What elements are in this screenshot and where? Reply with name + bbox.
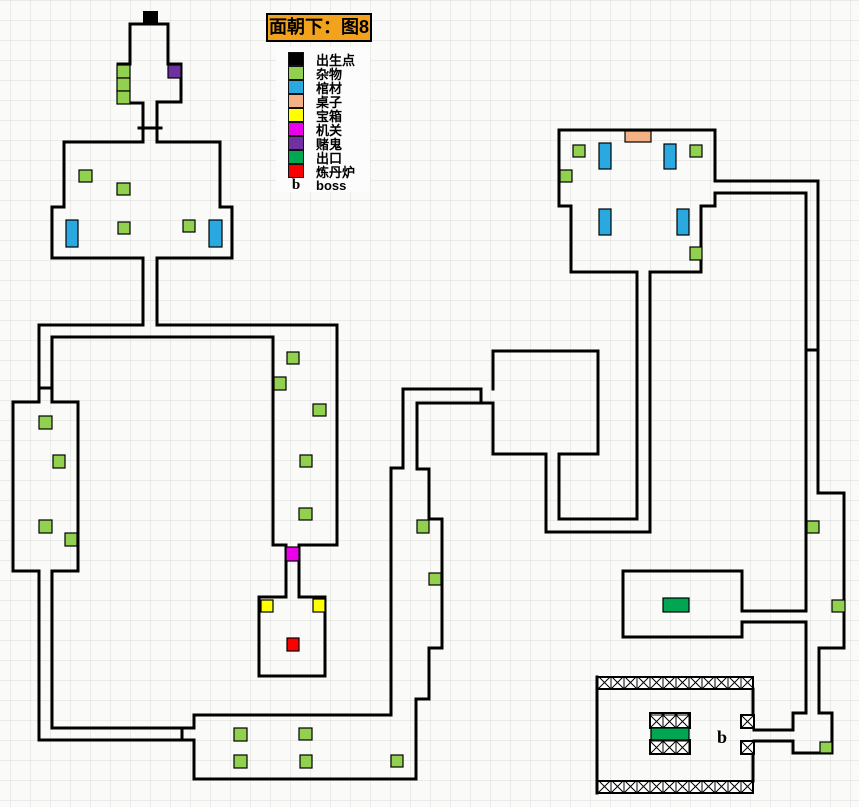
exit-marker	[651, 728, 689, 740]
sundries-marker	[274, 377, 286, 390]
sundries-marker	[117, 65, 130, 78]
sundries-marker	[234, 755, 247, 768]
sundries-marker	[65, 533, 77, 546]
hatched-wall	[597, 677, 753, 689]
legend-swatch	[288, 122, 304, 136]
hatched-wall	[741, 715, 754, 728]
sundries-marker	[832, 600, 845, 612]
legend-swatch	[288, 52, 304, 66]
coffin-marker	[66, 220, 78, 247]
sundries-marker	[39, 416, 52, 429]
sundries-marker	[807, 521, 819, 533]
hatched-wall	[741, 741, 754, 754]
alchemy-furnace-marker	[287, 638, 299, 651]
coffin-marker	[677, 209, 689, 235]
coffin-marker	[599, 143, 611, 169]
sundries-marker	[820, 742, 832, 753]
coffin-marker	[599, 209, 611, 235]
sundries-marker	[234, 728, 247, 741]
legend-swatch	[288, 108, 304, 122]
legend-swatch	[288, 136, 304, 150]
sundries-marker	[118, 222, 130, 234]
mechanism-marker	[286, 547, 299, 561]
sundries-marker	[573, 145, 585, 157]
legend-swatch	[288, 150, 304, 164]
legend: 出生点杂物棺材桌子宝箱机关赌鬼出口炼丹炉bboss	[288, 52, 355, 192]
table-marker	[625, 131, 651, 142]
sundries-marker	[429, 573, 441, 585]
treasure-chest-marker	[261, 600, 273, 612]
sundries-marker	[183, 220, 195, 232]
legend-item: bboss	[288, 178, 355, 192]
treasure-chest-marker	[313, 599, 325, 612]
sundries-marker	[117, 91, 130, 104]
sundries-marker	[117, 183, 130, 195]
spawn-point-marker	[143, 11, 158, 24]
hatched-wall	[650, 713, 690, 728]
boss-label: b	[717, 727, 727, 747]
legend-label: boss	[316, 178, 346, 193]
legend-swatch	[288, 66, 304, 80]
map-canvas: b 面朝下：图8 出生点杂物棺材桌子宝箱机关赌鬼出口炼丹炉bboss	[0, 0, 859, 807]
hatched-wall	[597, 781, 753, 793]
sundries-marker	[560, 170, 572, 182]
sundries-marker	[313, 404, 326, 416]
dungeon-map: b	[0, 0, 859, 807]
sundries-marker	[417, 520, 429, 533]
sundries-marker	[117, 78, 130, 91]
exit-marker	[663, 598, 689, 612]
sundries-marker	[287, 352, 299, 364]
sundries-marker	[300, 455, 312, 467]
hatched-wall	[650, 740, 690, 754]
sundries-marker	[391, 755, 403, 767]
sundries-marker	[299, 728, 312, 740]
coffin-marker	[664, 144, 676, 169]
legend-swatch	[288, 94, 304, 108]
sundries-marker	[690, 247, 702, 260]
gambler-marker	[168, 65, 181, 78]
sundries-marker	[690, 145, 702, 157]
map-title: 面朝下：图8	[266, 13, 372, 42]
sundries-marker	[79, 170, 92, 182]
sundries-marker	[300, 755, 312, 768]
sundries-marker	[299, 508, 312, 520]
coffin-marker	[209, 220, 222, 247]
boss-symbol: b	[288, 177, 304, 194]
sundries-marker	[53, 455, 65, 468]
sundries-marker	[39, 520, 52, 533]
legend-swatch	[288, 80, 304, 94]
